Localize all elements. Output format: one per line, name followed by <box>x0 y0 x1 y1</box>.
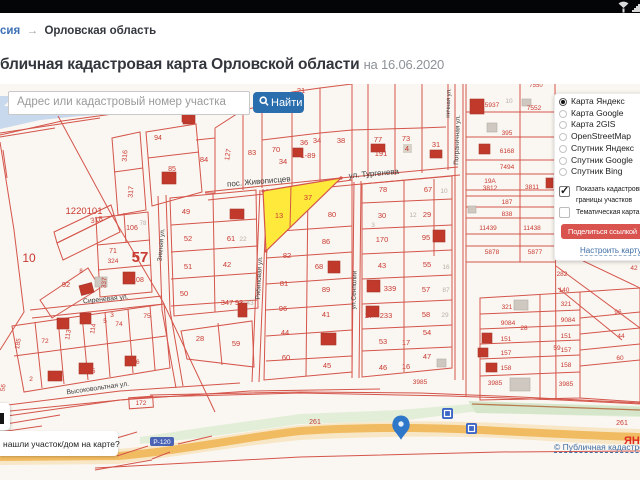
svg-text:42: 42 <box>630 265 638 272</box>
svg-text:170: 170 <box>376 235 389 244</box>
svg-text:23: 23 <box>52 374 60 381</box>
svg-text:83: 83 <box>248 148 256 157</box>
svg-text:86: 86 <box>322 237 330 246</box>
svg-text:1-89: 1-89 <box>300 151 315 160</box>
svg-text:151: 151 <box>561 333 572 340</box>
svg-text:54: 54 <box>423 328 431 337</box>
svg-text:49: 49 <box>182 207 190 216</box>
svg-text:11438: 11438 <box>523 225 541 232</box>
svg-text:87: 87 <box>442 287 450 294</box>
svg-text:74: 74 <box>115 321 123 328</box>
svg-text:282: 282 <box>557 271 568 278</box>
svg-text:81: 81 <box>280 279 288 288</box>
svg-text:27: 27 <box>365 311 373 320</box>
svg-text:3: 3 <box>371 222 375 229</box>
svg-text:94: 94 <box>154 135 162 142</box>
svg-text:9084: 9084 <box>561 317 576 324</box>
svg-text:336: 336 <box>321 337 334 346</box>
svg-text:34: 34 <box>279 157 287 166</box>
svg-text:108: 108 <box>132 277 144 284</box>
svg-text:42: 42 <box>223 260 231 269</box>
svg-text:163: 163 <box>230 212 243 221</box>
svg-text:4: 4 <box>405 144 409 153</box>
svg-text:57: 57 <box>132 249 149 266</box>
svg-text:187: 187 <box>502 199 513 206</box>
svg-text:3985: 3985 <box>559 381 574 388</box>
svg-text:191: 191 <box>375 149 388 158</box>
svg-text:96: 96 <box>279 304 287 313</box>
svg-text:5877: 5877 <box>528 249 543 256</box>
svg-text:55: 55 <box>423 260 431 269</box>
svg-text:335: 335 <box>85 368 96 375</box>
svg-text:13: 13 <box>275 211 283 220</box>
svg-text:12: 12 <box>409 212 417 219</box>
svg-text:157: 157 <box>501 350 512 357</box>
svg-text:261: 261 <box>616 420 628 427</box>
svg-text:10: 10 <box>22 251 36 265</box>
svg-text:337: 337 <box>101 277 109 289</box>
svg-text:67: 67 <box>424 185 432 194</box>
svg-text:321: 321 <box>502 304 513 311</box>
svg-text:17: 17 <box>402 338 410 347</box>
svg-text:261: 261 <box>309 419 321 426</box>
svg-text:106: 106 <box>126 225 138 232</box>
svg-text:38: 38 <box>337 136 345 145</box>
svg-text:5: 5 <box>103 318 107 325</box>
svg-text:68: 68 <box>315 262 323 271</box>
svg-text:46: 46 <box>379 363 387 372</box>
svg-text:5937: 5937 <box>485 102 500 109</box>
svg-text:158: 158 <box>501 365 512 372</box>
svg-text:57: 57 <box>422 285 430 294</box>
svg-text:75: 75 <box>143 313 151 320</box>
svg-text:53: 53 <box>379 337 387 346</box>
svg-text:317: 317 <box>128 186 136 198</box>
svg-text:50: 50 <box>180 289 188 298</box>
svg-text:35: 35 <box>367 284 375 293</box>
svg-text:31: 31 <box>432 140 440 149</box>
svg-text:5878: 5878 <box>485 249 500 256</box>
svg-text:ул.Сенполии: ул.Сенполии <box>350 270 358 309</box>
svg-text:16: 16 <box>402 362 410 371</box>
svg-text:11439: 11439 <box>479 225 497 232</box>
svg-text:10: 10 <box>440 188 448 195</box>
svg-text:70: 70 <box>272 145 280 154</box>
svg-text:51: 51 <box>184 262 192 271</box>
svg-text:28: 28 <box>196 334 204 343</box>
svg-text:59: 59 <box>232 339 240 348</box>
svg-text:61: 61 <box>227 234 235 243</box>
svg-text:52: 52 <box>184 234 192 243</box>
svg-text:395: 395 <box>502 130 513 137</box>
svg-text:60: 60 <box>282 353 290 362</box>
svg-text:157: 157 <box>561 347 572 354</box>
svg-text:186: 186 <box>182 118 191 124</box>
svg-text:28: 28 <box>520 325 528 332</box>
svg-text:7550: 7550 <box>529 84 543 89</box>
svg-text:82: 82 <box>283 251 291 260</box>
svg-text:80: 80 <box>328 210 336 219</box>
svg-text:41: 41 <box>322 310 330 319</box>
svg-text:58: 58 <box>422 310 430 319</box>
svg-text:36: 36 <box>300 138 308 147</box>
svg-text:3812: 3812 <box>483 185 498 192</box>
svg-text:316: 316 <box>122 150 130 162</box>
svg-text:34: 34 <box>313 136 321 145</box>
svg-text:37: 37 <box>304 193 312 202</box>
svg-text:60: 60 <box>616 355 624 362</box>
svg-text:3811: 3811 <box>525 184 539 191</box>
svg-text:59: 59 <box>553 345 561 352</box>
svg-text:158: 158 <box>561 362 572 369</box>
svg-text:2: 2 <box>29 376 33 383</box>
svg-text:77: 77 <box>374 135 382 144</box>
svg-text:3985: 3985 <box>413 379 428 386</box>
svg-text:140: 140 <box>559 287 570 294</box>
svg-text:71: 71 <box>109 248 117 255</box>
svg-text:324: 324 <box>108 258 119 265</box>
svg-text:321: 321 <box>561 301 572 308</box>
svg-text:ничная ул.: ничная ул. <box>445 88 452 118</box>
svg-text:45: 45 <box>323 361 331 370</box>
svg-text:16: 16 <box>442 264 450 271</box>
svg-text:84: 84 <box>200 155 208 164</box>
svg-text:3: 3 <box>110 312 114 319</box>
svg-text:233: 233 <box>380 311 393 320</box>
svg-text:838: 838 <box>502 211 513 218</box>
svg-text:29: 29 <box>423 210 431 219</box>
svg-text:347: 347 <box>221 298 234 307</box>
svg-text:43: 43 <box>246 300 254 307</box>
svg-text:339: 339 <box>384 284 397 293</box>
svg-text:30: 30 <box>378 211 386 220</box>
svg-text:19А: 19А <box>484 178 496 185</box>
svg-text:7494: 7494 <box>500 164 515 171</box>
svg-text:47: 47 <box>423 352 431 361</box>
svg-text:43: 43 <box>378 261 386 270</box>
svg-text:172: 172 <box>136 400 147 407</box>
svg-text:29: 29 <box>441 312 449 319</box>
svg-text:78: 78 <box>379 185 387 194</box>
svg-text:95: 95 <box>422 233 430 242</box>
svg-text:9084: 9084 <box>501 320 516 327</box>
svg-text:78: 78 <box>140 221 147 227</box>
svg-text:10: 10 <box>505 98 513 105</box>
svg-text:22: 22 <box>239 236 247 243</box>
svg-text:6168: 6168 <box>500 148 515 155</box>
svg-text:44: 44 <box>281 328 289 337</box>
svg-text:7552: 7552 <box>527 105 542 112</box>
svg-text:1220101: 1220101 <box>66 206 103 217</box>
svg-text:151: 151 <box>501 336 512 343</box>
svg-text:72: 72 <box>41 338 49 345</box>
svg-text:76: 76 <box>132 359 140 366</box>
svg-text:92: 92 <box>62 280 70 289</box>
svg-text:73: 73 <box>402 134 410 143</box>
svg-text:89: 89 <box>322 285 330 294</box>
svg-text:3985: 3985 <box>488 380 503 387</box>
